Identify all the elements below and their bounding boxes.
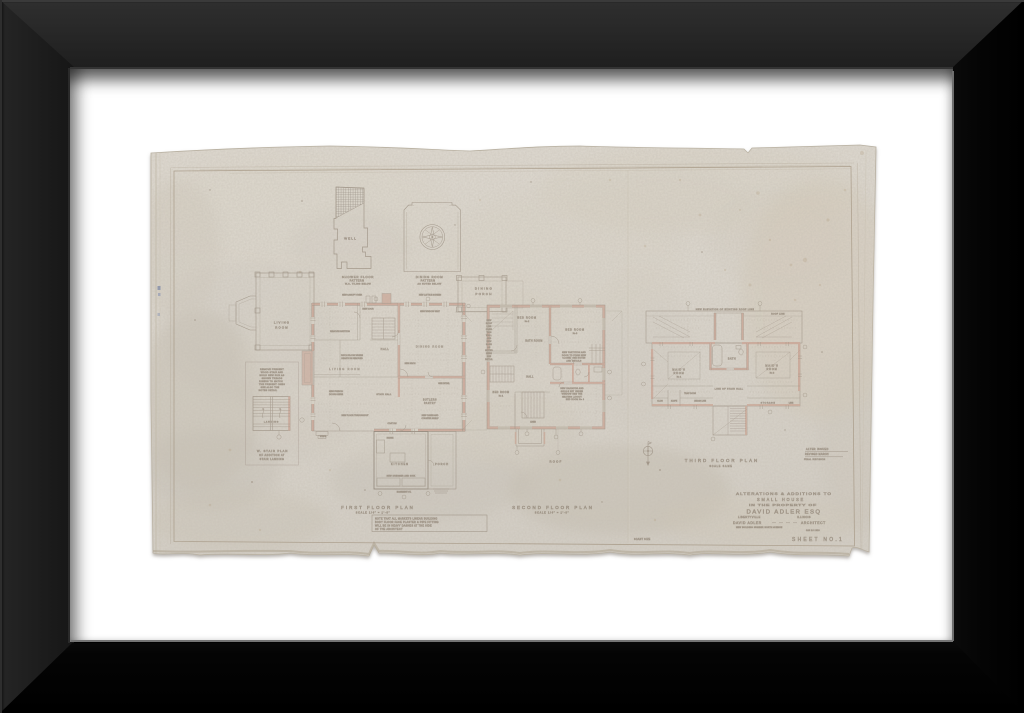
svg-text:ALTER ISSUED: ALTER ISSUED [806, 448, 829, 451]
svg-text:DAVID ADLER ESQ: DAVID ADLER ESQ [747, 510, 822, 516]
svg-text:PATCH FLOOR WHERE: PATCH FLOOR WHERE [341, 354, 364, 357]
svg-text:ILLINOIS: ILLINOIS [797, 515, 811, 519]
svg-text:ROOM: ROOM [767, 368, 778, 371]
svg-text:CLOSET SEE NOTES: CLOSET SEE NOTES [562, 358, 586, 360]
svg-text:RISERS TO MATCH: RISERS TO MATCH [259, 380, 283, 383]
svg-text:PANTRY: PANTRY [424, 402, 436, 405]
svg-text:NEW DOOR: NEW DOOR [362, 309, 374, 311]
svg-text:SCALE 1/4″ = 1′-0″: SCALE 1/4″ = 1′-0″ [535, 512, 570, 515]
svg-text:LINE: LINE [789, 403, 794, 405]
svg-text:SASH: SASH [486, 343, 492, 346]
svg-text:LIVING: LIVING [274, 321, 290, 325]
svg-text:TRAP DOOR: TRAP DOOR [684, 392, 696, 395]
svg-text:THIRD FLOOR PLAN: THIRD FLOOR PLAN [685, 458, 759, 463]
svg-text:OVER: OVER [486, 329, 493, 331]
svg-text:HALL: HALL [381, 348, 390, 351]
svg-text:STAIR LANDING: STAIR LANDING [260, 458, 285, 461]
svg-text:CLOS: CLOS [657, 401, 663, 403]
svg-text:COAT RM: COAT RM [387, 422, 396, 425]
svg-text:OF ADDITION AT: OF ADDITION AT [259, 454, 285, 457]
svg-text:BUILD NEW RUN AS: BUILD NEW RUN AS [260, 374, 285, 377]
svg-text:NEW ELEVATION OF EXISTING: NEW ELEVATION OF EXISTING ROOF LINE [696, 308, 755, 311]
svg-text:NEW FRENCH: NEW FRENCH [329, 391, 344, 393]
svg-text:CEDAR LINE: CEDAR LINE [694, 400, 707, 403]
svg-text:HERE: HERE [486, 353, 493, 355]
svg-text:SEE: SEE [487, 356, 492, 358]
svg-text:REMOVE PRESENT: REMOVE PRESENT [260, 369, 284, 371]
svg-text:ROOF: ROOF [486, 323, 493, 325]
svg-text:BED ROOM No 4: BED ROOM No 4 [566, 399, 585, 401]
svg-text:AS NOTED BELOW: AS NOTED BELOW [418, 282, 443, 285]
svg-text:WOOD STAIR AND: WOOD STAIR AND [261, 371, 284, 374]
svg-text:DOOR TO FORM NEW: DOOR TO FORM NEW [562, 355, 586, 357]
svg-text:NEW ARCH: NEW ARCH [405, 362, 416, 365]
svg-text:SECOND FLOOR PLAN: SECOND FLOOR PLAN [512, 505, 594, 510]
svg-text:NEW CASES AND: NEW CASES AND [422, 414, 439, 417]
svg-text:FIRST FLOOR PLAN: FIRST FLOOR PLAN [341, 505, 415, 510]
svg-text:BED ROOM: BED ROOM [565, 329, 584, 332]
svg-text:WELL: WELL [344, 237, 357, 241]
svg-text:W. STAIR PLAN: W. STAIR PLAN [257, 449, 288, 453]
svg-text:HEATING LAYOUT: HEATING LAYOUT [562, 395, 583, 398]
svg-text:SHOWER FLOOR: SHOWER FLOOR [342, 275, 374, 279]
svg-text:PATTERN: PATTERN [421, 279, 436, 282]
svg-text:BUTLERS: BUTLERS [423, 400, 437, 402]
svg-text:NEW: NEW [486, 320, 491, 322]
svg-text:NEW FLOOR THROUGHOUT: NEW FLOOR THROUGHOUT [342, 415, 370, 417]
svg-text:SCALE SAME: SCALE SAME [709, 465, 732, 468]
svg-text:DAVID ADLER: DAVID ADLER [733, 521, 762, 525]
svg-text:HALL: HALL [526, 376, 534, 379]
svg-text:LIVING ROOM: LIVING ROOM [329, 367, 361, 371]
svg-text:NEW WINDOW SEAT: NEW WINDOW SEAT [420, 310, 440, 313]
svg-text:JAN 16 1920: JAN 16 1920 [806, 529, 820, 532]
svg-text:ROOM: ROOM [674, 372, 685, 375]
svg-text:REMOVE PARTITION: REMOVE PARTITION [330, 330, 350, 333]
svg-text:RANGE: RANGE [387, 437, 394, 440]
svg-text:AND DETAILS: AND DETAILS [566, 359, 582, 362]
svg-text:COUNTER SHELF: COUNTER SHELF [422, 418, 440, 420]
svg-text:SLOPE: SLOPE [671, 401, 678, 403]
svg-text:PORCH: PORCH [435, 463, 449, 466]
svg-text:DINING: DINING [475, 287, 493, 291]
svg-text:BED ROOM: BED ROOM [492, 391, 509, 394]
svg-text:PORCH: PORCH [475, 292, 492, 296]
svg-text:LIBERTYVILLE: LIBERTYVILLE [738, 515, 761, 519]
svg-text:NOTES DETAIL: NOTES DETAIL [259, 389, 278, 392]
svg-text:BATH: BATH [728, 358, 736, 361]
svg-text:NEW PARTITION AND: NEW PARTITION AND [562, 351, 586, 354]
svg-text:STAIR HALL: STAIR HALL [376, 393, 392, 396]
svg-text:NEW DRESSER AND SINK: NEW DRESSER AND SINK [387, 475, 416, 478]
svg-text:SEE ALSO THE: SEE ALSO THE [261, 386, 280, 389]
svg-text:SMALL HOUSE: SMALL HOUSE [757, 497, 805, 502]
svg-text:AND: AND [487, 337, 492, 340]
svg-text:WALL: WALL [486, 334, 492, 337]
svg-text:GRILLE SET UNDER: GRILLE SET UNDER [561, 391, 584, 393]
svg-text:NEW BUILDING NUMBER NORTH: NEW BUILDING NUMBER NORTH AVENUE [736, 526, 783, 529]
svg-text:STEPS: STEPS [320, 436, 327, 438]
svg-text:SHOWN TREADS: SHOWN TREADS [262, 377, 283, 380]
svg-text:LINEN: LINEN [530, 422, 536, 424]
svg-text:LINE OF STAIR HALL: LINE OF STAIR HALL [715, 388, 744, 391]
svg-text:BASEMENT ST.: BASEMENT ST. [397, 491, 412, 494]
svg-text:ALTERATIONS & ADDITIONS TO: ALTERATIONS & ADDITIONS TO [736, 492, 832, 496]
svg-text:IN THE PROPERTY OF: IN THE PROPERTY OF [749, 503, 817, 507]
svg-text:OF THE ARCHITECT: OF THE ARCHITECT [375, 528, 403, 531]
svg-text:THIS: THIS [486, 332, 492, 334]
svg-text:LANDING: LANDING [264, 421, 279, 424]
svg-text:FINAL REVISION: FINAL REVISION [804, 458, 825, 461]
svg-text:STORAGE: STORAGE [761, 402, 776, 405]
svg-text:PATTERN: PATTERN [350, 279, 365, 282]
svg-text:DINING ROOM: DINING ROOM [416, 346, 444, 349]
svg-text:NEW CANOPY OVER: NEW CANOPY OVER [342, 294, 362, 297]
svg-text:REVISED MARCH: REVISED MARCH [805, 453, 829, 456]
svg-text:DINING ROOM: DINING ROOM [416, 275, 444, 279]
svg-text:ROOF LINE: ROOF LINE [771, 314, 785, 316]
svg-text:KITCHEN: KITCHEN [391, 463, 409, 466]
svg-text:ROOM: ROOM [275, 326, 289, 330]
svg-text:W.C. TILING BELOW: W.C. TILING BELOW [345, 283, 372, 285]
svg-text:NEW RADIATOR AND: NEW RADIATOR AND [560, 387, 584, 390]
svg-text:SHEET NO.1: SHEET NO.1 [792, 537, 844, 543]
svg-text:THE PRESENT ONES: THE PRESENT ONES [259, 384, 285, 386]
svg-text:HEARTH IS REMOVED: HEARTH IS REMOVED [341, 357, 363, 360]
svg-text:NOTED: NOTED [485, 350, 493, 352]
svg-text:NEW: NEW [486, 341, 491, 343]
svg-text:BED ROOM: BED ROOM [517, 317, 536, 320]
svg-text:NEW LATTICE SCREEN: NEW LATTICE SCREEN [419, 294, 442, 297]
svg-text:DOORS HERE: DOORS HERE [329, 394, 344, 396]
svg-text:DETAIL: DETAIL [485, 358, 493, 361]
svg-text:LINE: LINE [486, 326, 492, 328]
svg-text:SCANT SIZE: SCANT SIZE [634, 538, 651, 541]
svg-text:SCALE 1/4″ = 1′-0″: SCALE 1/4″ = 1′-0″ [356, 512, 391, 515]
svg-text:ARCHITECT: ARCHITECT [801, 521, 826, 525]
svg-text:ROOF: ROOF [550, 460, 563, 464]
